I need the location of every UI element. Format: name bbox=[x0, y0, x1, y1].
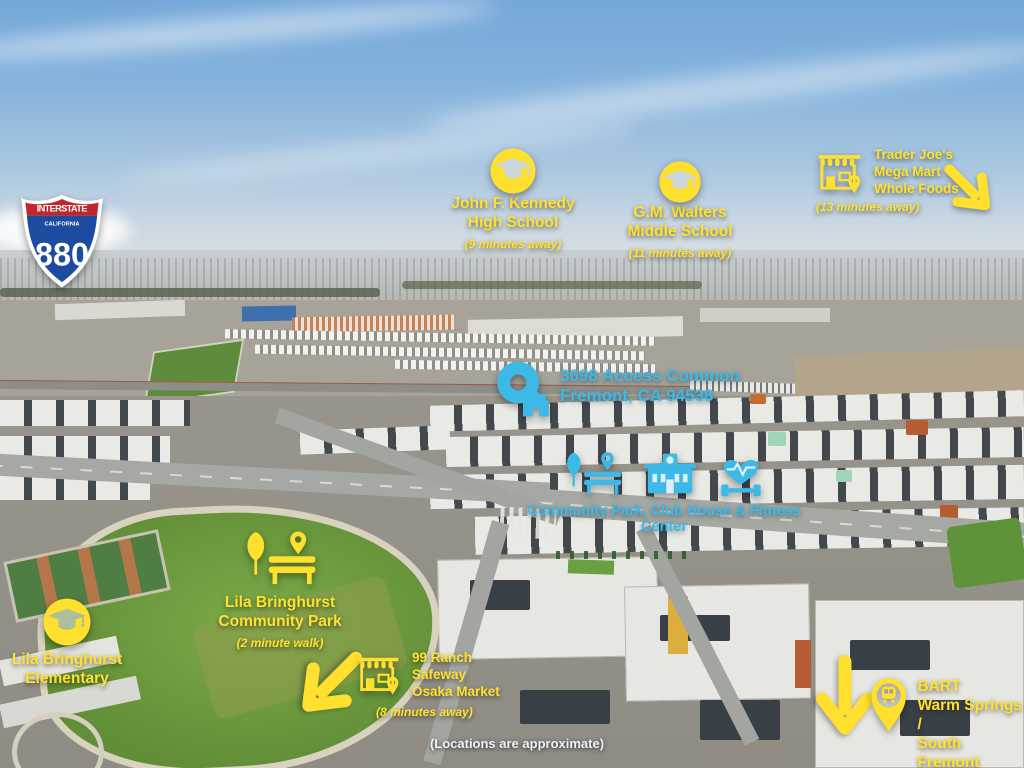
elementary-line2: Elementary bbox=[8, 670, 126, 689]
treeline bbox=[402, 281, 702, 289]
community-park-line2: Community Park bbox=[196, 613, 364, 632]
grocery-south-line3: Osaka Market bbox=[412, 684, 500, 701]
elementary-line1: Lila Bringhurst bbox=[8, 651, 126, 670]
mint-facade bbox=[836, 470, 852, 482]
jfk-name-line2: High School bbox=[428, 214, 598, 233]
annotation-walters-middle-school: G.M. Walters Middle School (11 minutes a… bbox=[598, 160, 762, 260]
community-park-distance: (2 minute walk) bbox=[196, 636, 364, 650]
bart-line3: South Fremont bbox=[917, 735, 1024, 768]
palm-tree-row bbox=[556, 551, 686, 559]
median-planting bbox=[568, 559, 614, 575]
bart-line2: Warm Springs / bbox=[917, 697, 1024, 735]
walters-name-line2: Middle School bbox=[598, 223, 762, 242]
shield-state-text: CALIFORNIA bbox=[45, 221, 80, 227]
rust-facade bbox=[906, 420, 928, 435]
corner-lawn bbox=[946, 517, 1024, 589]
annotation-elementary-school: Lila Bringhurst Elementary bbox=[8, 597, 126, 689]
grocery-south-distance: (8 minutes away) bbox=[376, 705, 500, 719]
annotation-grocery-south: 99 Ranch Safeway Osaka Market (8 minutes… bbox=[356, 650, 500, 719]
solar-roof bbox=[520, 690, 610, 724]
storefront-pin-icon bbox=[816, 147, 866, 197]
tree-bench-pin-icon bbox=[560, 451, 626, 497]
annotation-grocery-north: Trader Joe's Mega Mart Whole Foods (13 m… bbox=[816, 147, 1016, 214]
shield-interstate-text: INTERSTATE bbox=[37, 203, 88, 213]
tree-bench-pin-icon bbox=[239, 530, 321, 588]
storefront-pin-icon bbox=[356, 650, 404, 698]
graduation-cap-circle-icon bbox=[42, 597, 92, 647]
locations-disclaimer: (Locations are approximate) bbox=[412, 736, 622, 751]
warehouse-roof bbox=[700, 308, 830, 322]
townhouse-row bbox=[0, 400, 190, 426]
graduation-cap-circle-icon bbox=[658, 160, 702, 204]
address-line2: Fremont, CA 94538 bbox=[560, 386, 740, 406]
fitness-heart-dumbbell-icon bbox=[714, 447, 768, 497]
walters-name-line1: G.M. Walters bbox=[598, 204, 762, 223]
walters-distance: (11 minutes away) bbox=[598, 246, 762, 260]
interstate-shield-icon: INTERSTATE CALIFORNIA 880 bbox=[18, 192, 106, 290]
annotation-bart-station: BART Warm Springs / South Fremont (3 min… bbox=[868, 672, 1024, 768]
community-park-line1: Lila Bringhurst bbox=[196, 594, 364, 613]
orange-facade bbox=[750, 394, 766, 404]
train-pin-icon bbox=[868, 672, 909, 736]
grocery-north-line2: Mega Mart bbox=[874, 164, 959, 181]
graduation-cap-circle-icon bbox=[489, 147, 537, 195]
clubhouse-icon bbox=[642, 449, 698, 497]
mint-facade bbox=[768, 432, 786, 446]
community-amenities-label: Community Park, Club House & Fitness Cen… bbox=[522, 503, 806, 535]
grocery-north-line1: Trader Joe's bbox=[874, 147, 959, 164]
grocery-north-distance: (13 minutes away) bbox=[816, 200, 1016, 214]
warehouse-roof-blue bbox=[242, 306, 296, 322]
bart-line1: BART bbox=[917, 678, 1024, 697]
grocery-south-line1: 99 Ranch bbox=[412, 650, 500, 667]
annotation-community-park: Lila Bringhurst Community Park (2 minute… bbox=[196, 530, 364, 650]
grocery-south-line2: Safeway bbox=[412, 667, 500, 684]
annotation-jfk-high-school: John F. Kennedy High School (9 minutes a… bbox=[428, 147, 598, 251]
grocery-north-line3: Whole Foods bbox=[874, 181, 959, 198]
address-line1: 3698 Access Common bbox=[560, 366, 740, 386]
jfk-name-line1: John F. Kennedy bbox=[428, 195, 598, 214]
annotation-property-address: 3698 Access Common Fremont, CA 94538 bbox=[494, 358, 740, 420]
interstate-880-shield: INTERSTATE CALIFORNIA 880 bbox=[18, 192, 106, 290]
jfk-distance: (9 minutes away) bbox=[428, 237, 598, 251]
annotation-community-amenities: Community Park, Club House & Fitness Cen… bbox=[522, 447, 806, 535]
warehouse-roof-ribbed bbox=[292, 315, 454, 333]
home-pin-icon bbox=[494, 358, 552, 420]
aerial-photo-map: INTERSTATE CALIFORNIA 880 John F. Kenned… bbox=[0, 0, 1024, 768]
